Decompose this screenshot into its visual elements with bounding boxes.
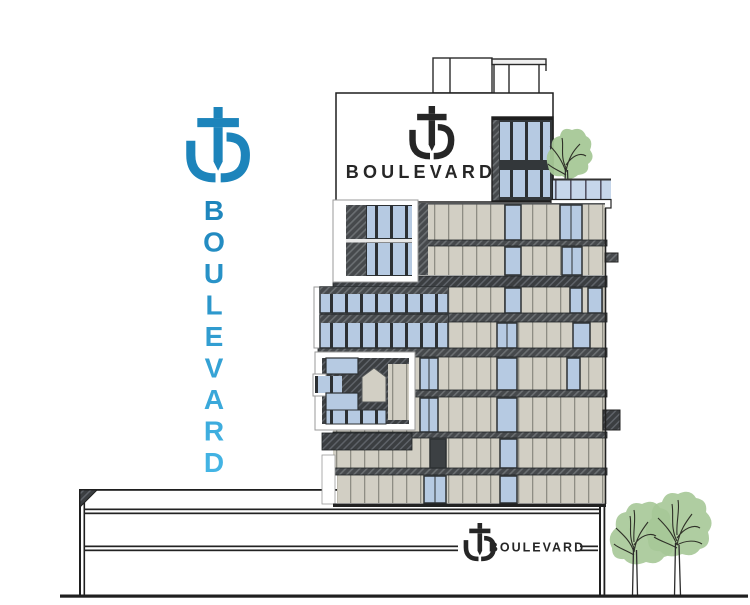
vertical-letter: D [204,447,224,478]
slab-band [333,468,607,475]
roof-pergola-beam [492,59,546,65]
podium-band-line [84,550,458,552]
stair-tower-glazing-lower [500,170,550,197]
bay-divider [346,239,412,243]
street-trees [610,492,712,595]
vertical-letter: B [204,195,224,226]
vertical-letter: U [204,258,224,289]
white-framed-bay-lower [313,352,415,430]
railing-top-rail [553,179,611,181]
podium-band-line [84,546,458,548]
bay-glazing [367,243,412,275]
podium-sign: BOULEVARD [466,523,585,559]
vertical-letter: L [205,290,222,321]
railing-glass [553,180,611,200]
bay-glass-row [326,410,386,424]
ground-line [60,595,748,598]
bay-hatch-panel [346,242,366,276]
podium-corner-hatch [80,490,97,507]
bay-glass-tile [326,393,358,412]
vertical-letter: V [205,353,224,384]
stair-tower-glazing-upper [500,122,550,160]
podium-band-line [84,509,600,511]
podium-roof-line [79,489,337,491]
white-framed-bay-upper [333,200,418,282]
podium-band-line [84,513,600,515]
right-fin-upper [605,253,618,262]
balcony-transom [320,315,448,323]
bay-beige-column [388,364,409,420]
brand-lockup: B O U L E V A R D [191,107,246,478]
brand-vertical-wordmark: B O U L E V A R D [203,195,225,478]
stair-tower-hatch-edge [492,117,499,201]
podium-right-edge [599,505,601,596]
roof-penthouse-left [433,58,492,93]
balcony-transom [320,287,448,294]
balcony-white-edge [314,287,320,348]
architectural-elevation-canvas: BOULEVARD BOULEVARD B O U L E V A R D [0,0,750,605]
podium-name-text: BOULEVARD [489,541,585,555]
building-name-text: BOULEVARD [346,162,496,182]
bay-glazing [367,206,412,238]
slab-band [420,240,607,246]
bay-hatch-panel [346,205,366,239]
elevation-drawing: BOULEVARD BOULEVARD B O U L E V A R D [0,0,750,605]
anchor-logo-brand-icon [191,107,246,178]
projecting-glazed-balconies [314,287,448,348]
floor-row [337,475,605,503]
building-base-line [333,504,606,508]
ground-white-pier [322,455,335,504]
bay-glass-tile [315,376,342,393]
bay-glass-tile [326,358,358,374]
vertical-letter: E [205,321,224,352]
stair-tower [492,117,553,201]
building-elevation: BOULEVARD [313,58,620,507]
podium-left-edge-inner [84,491,86,596]
left-hatch-spandrel [322,433,412,450]
vertical-letter: O [203,227,225,258]
vertical-letter: R [204,416,224,447]
vertical-letter: A [204,384,224,415]
rooftop-structures [433,58,546,93]
podium-right-edge-outer [604,505,606,596]
